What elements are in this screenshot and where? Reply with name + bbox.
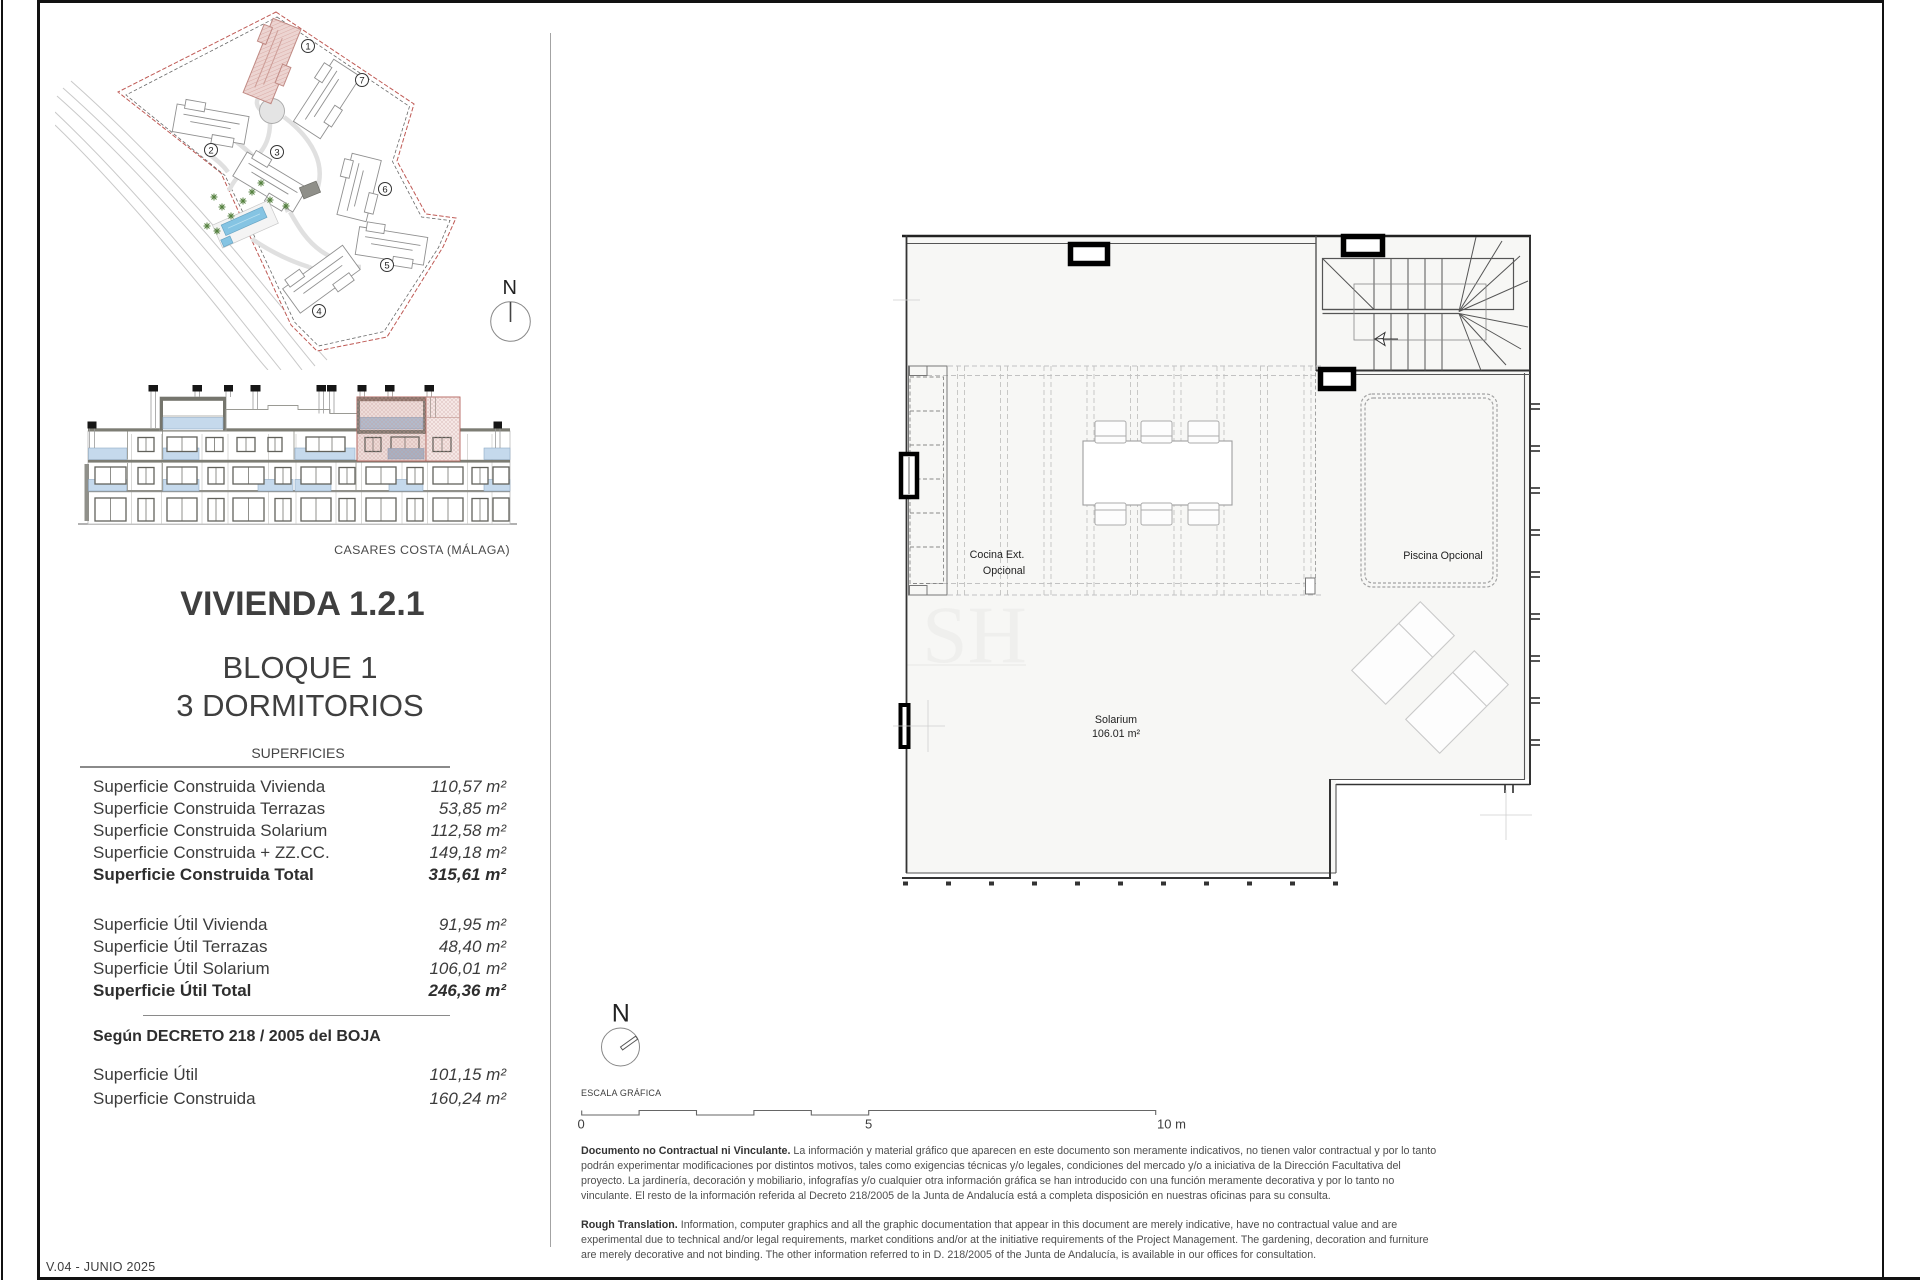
svg-text:0: 0 bbox=[578, 1117, 585, 1132]
svg-text:6: 6 bbox=[382, 185, 387, 196]
svg-text:1: 1 bbox=[305, 42, 310, 53]
svg-text:Solarium: Solarium bbox=[1095, 714, 1137, 726]
svg-text:7: 7 bbox=[359, 76, 364, 87]
svg-text:10 m: 10 m bbox=[1157, 1117, 1186, 1132]
svg-text:Piscina Opcional: Piscina Opcional bbox=[1403, 550, 1483, 562]
svg-text:Opcional: Opcional bbox=[983, 565, 1025, 577]
svg-text:4: 4 bbox=[316, 307, 321, 318]
svg-text:106.01 m²: 106.01 m² bbox=[1092, 728, 1141, 740]
svg-text:SH: SH bbox=[922, 589, 1027, 680]
svg-text:N: N bbox=[612, 1000, 630, 1028]
svg-text:Cocina Ext.: Cocina Ext. bbox=[970, 549, 1025, 561]
svg-text:2: 2 bbox=[208, 146, 213, 157]
svg-text:5: 5 bbox=[384, 261, 389, 272]
svg-text:5: 5 bbox=[865, 1117, 872, 1132]
svg-text:3: 3 bbox=[274, 148, 279, 159]
svg-text:N: N bbox=[503, 277, 517, 299]
